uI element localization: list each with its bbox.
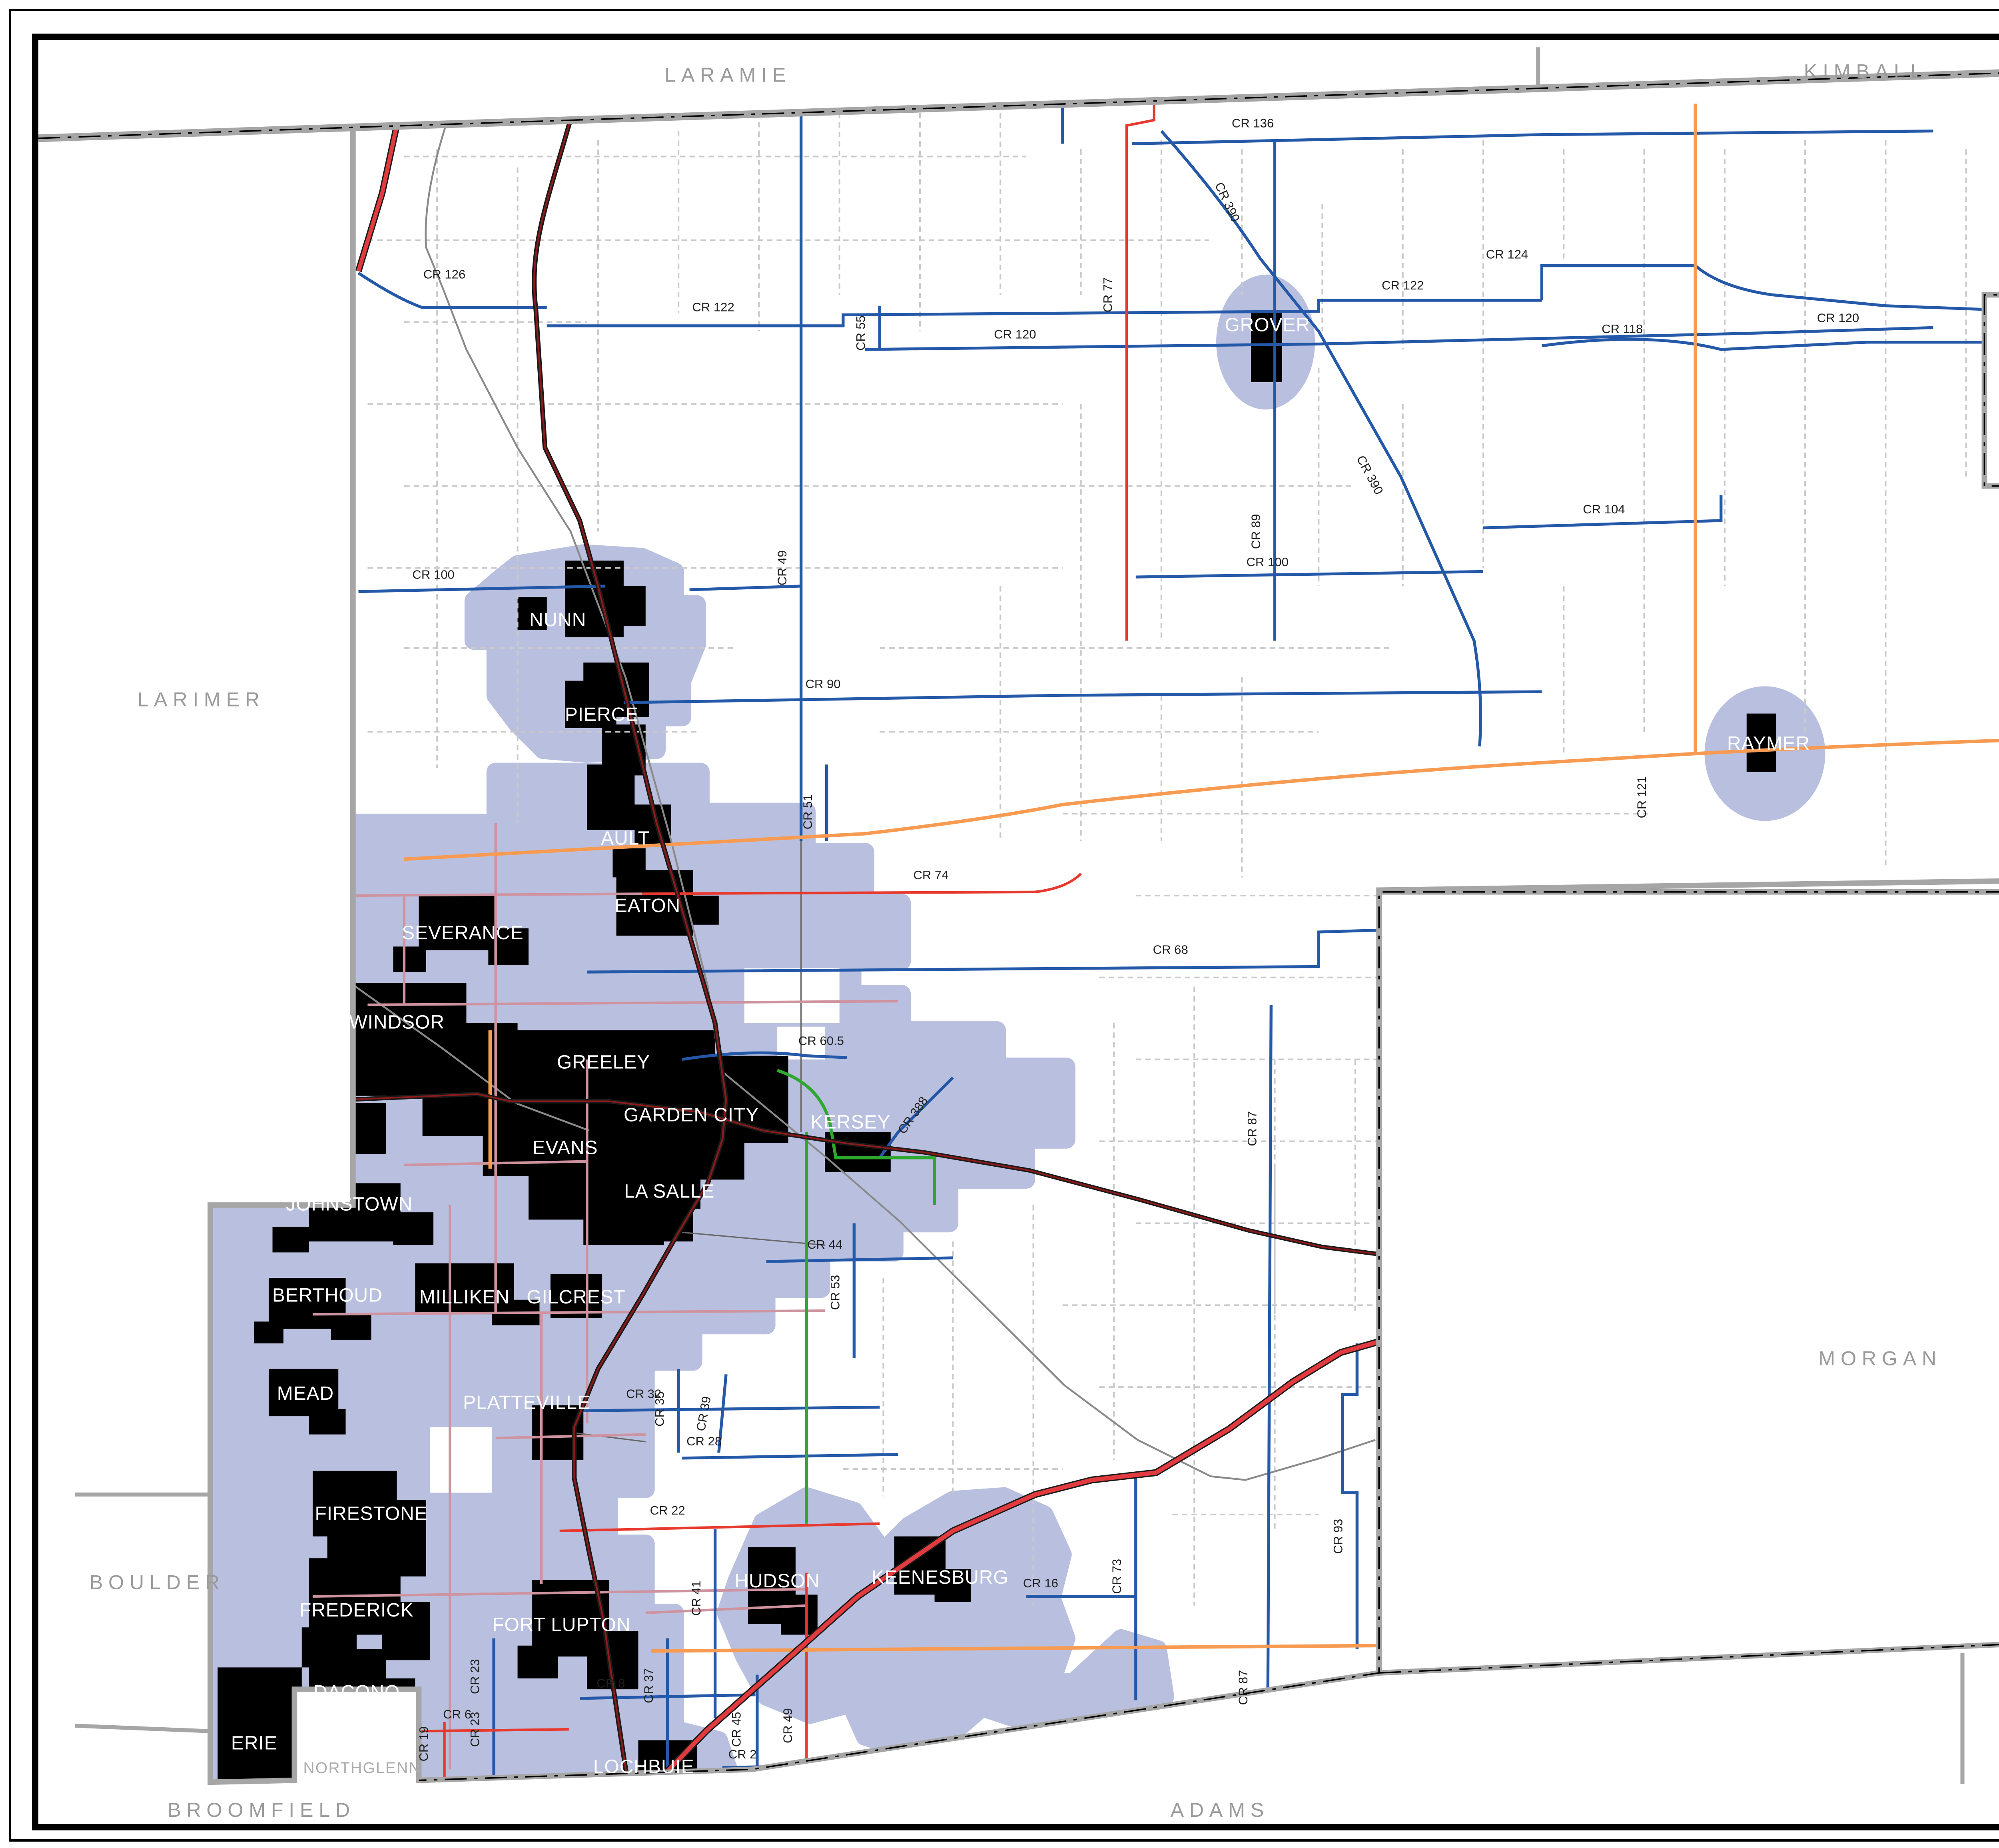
town-label: FREDERICK [299, 1600, 414, 1621]
town-label: LA SALLE [624, 1181, 714, 1202]
county-label: LARAMIE [664, 64, 791, 86]
road-label: CR 104 [1583, 502, 1625, 516]
town-label: GROVER [1225, 315, 1310, 336]
town-label: DACONO [313, 1682, 400, 1703]
map-frame: LARAMIEKIMBALLLOGANLARIMERMORGANBOULDERN… [32, 34, 1999, 1830]
town-label: JOHNSTOWN [286, 1194, 413, 1215]
road-label: CR 2 [728, 1747, 757, 1761]
road-label: CR 124 [1486, 247, 1528, 261]
road-label: CR 8 [597, 1676, 625, 1690]
road-label: CR 37 [642, 1668, 656, 1703]
town-label: PLATTEVILLE [463, 1392, 591, 1413]
road-label: CR 74 [913, 868, 948, 882]
town-label: BERTHOUD [272, 1285, 383, 1306]
town-label: HUDSON [734, 1571, 820, 1592]
road-label: CR 44 [807, 1237, 842, 1251]
county-label: MORGAN [1818, 1347, 1942, 1370]
road-label: CR 122 [692, 300, 734, 314]
county-label: BOULDER [90, 1571, 225, 1594]
road-label: CR 41 [689, 1581, 703, 1616]
county-label: KIMBALL [1804, 60, 1927, 83]
morgan-county-area [1379, 877, 1999, 1673]
town-label: MEAD [277, 1383, 334, 1404]
road-label: CR 28 [686, 1434, 722, 1448]
town-label: MILLIKEN [419, 1287, 510, 1308]
road-label: CR 93 [1331, 1519, 1345, 1554]
road-label: CR 49 [781, 1708, 795, 1743]
town-label: ERIE [231, 1732, 277, 1754]
town-label: WINDSOR [349, 1012, 444, 1033]
town-label: RAYMER [1727, 733, 1810, 754]
county-label: LARIMER [137, 689, 265, 711]
road-label: CR 120 [994, 327, 1036, 341]
town-label: GARDEN CITY [624, 1105, 759, 1126]
road-label: CR 122 [1382, 278, 1424, 292]
road-label: CR 89 [1249, 514, 1263, 549]
road-label: CR 126 [423, 267, 465, 281]
road-label: CR 90 [805, 677, 840, 691]
town-label: FORT LUPTON [492, 1614, 630, 1635]
town-label: AULT [601, 828, 650, 849]
map-sheet: LARAMIEKIMBALLLOGANLARIMERMORGANBOULDERN… [0, 0, 1999, 1848]
road-label: CR 121 [1635, 776, 1649, 818]
road-label: CR 118 [1602, 322, 1643, 336]
town-label: EVANS [533, 1138, 598, 1159]
town-label: NUNN [529, 609, 586, 631]
town-label: KEENESBURG [872, 1567, 1009, 1588]
road-label: CR 51 [801, 794, 815, 830]
town-label: LOCHBUIE [593, 1756, 694, 1778]
road-label: CR 19 [417, 1726, 431, 1762]
county-label: NORTHGLENN [303, 1760, 421, 1777]
road-label: CR 73 [1110, 1559, 1124, 1594]
county-label: BROOMFIELD [168, 1799, 355, 1821]
county-label: ADAMS [1170, 1799, 1269, 1821]
map-canvas: LARAMIEKIMBALLLOGANLARIMERMORGANBOULDERN… [38, 40, 1999, 1824]
road-label: CR 87 [1245, 1111, 1259, 1146]
road-label: CR 60.5 [798, 1034, 844, 1048]
road-label: CR 77 [1101, 277, 1115, 313]
road-label: CR 6 [443, 1707, 471, 1721]
road-label: CR 136 [1232, 116, 1274, 130]
road-label: CR 68 [1153, 943, 1188, 957]
road-label: CR 23 [468, 1659, 482, 1694]
road-label: CR 45 [730, 1712, 744, 1747]
road-label: CR 100 [1246, 555, 1288, 569]
road-label: CR 120 [1817, 311, 1859, 325]
road-label: CR 16 [1023, 1576, 1058, 1590]
town-label: PIERCE [565, 704, 638, 725]
town-label: GREELEY [557, 1052, 650, 1073]
town-label: GILCREST [527, 1287, 625, 1308]
road-label: CR 100 [412, 568, 454, 582]
town-label: EATON [614, 895, 681, 916]
town-label: KERSEY [810, 1112, 890, 1133]
road-label: CR 53 [828, 1275, 842, 1310]
road-label: CR 55 [854, 315, 868, 351]
town-label: FIRESTONE [315, 1503, 427, 1525]
town-label: SEVERANCE [402, 922, 523, 944]
road-label: CR 32 [626, 1387, 661, 1401]
arterial-not-constructed [774, 1766, 806, 1798]
road-label: CR 49 [775, 551, 789, 586]
road-label: CR 87 [1236, 1670, 1250, 1705]
road-label: CR 22 [650, 1503, 685, 1517]
